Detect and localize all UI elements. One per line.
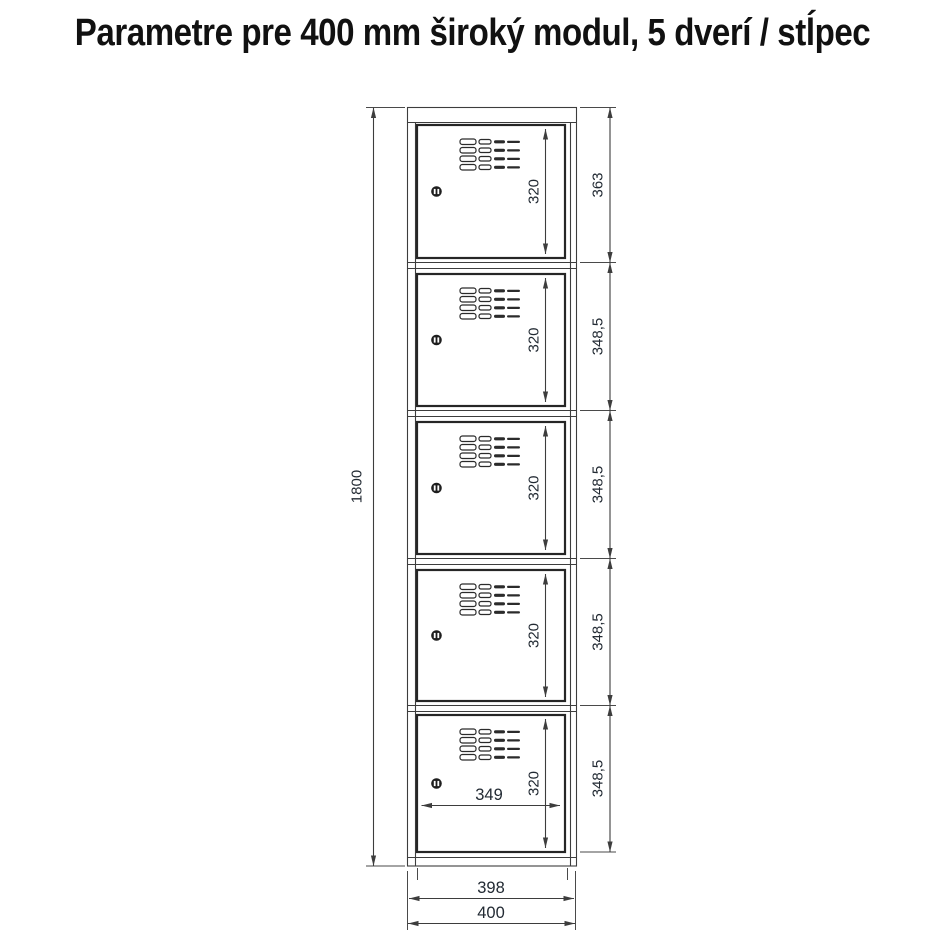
locker-door-2: 320 bbox=[417, 274, 565, 406]
door-width-label: 349 bbox=[475, 786, 503, 804]
width-dimensions: 398 400 bbox=[408, 868, 576, 930]
locker-door-4: 320 bbox=[417, 570, 565, 701]
lock-icon bbox=[431, 335, 442, 346]
door-height-label: 320 bbox=[526, 179, 543, 204]
overall-height-label: 1800 bbox=[349, 470, 366, 503]
overall-height-dimension: 1800 bbox=[349, 108, 406, 867]
bay-3-pitch-label: 348,5 bbox=[590, 466, 607, 504]
technical-drawing: 320 320 320 320 bbox=[0, 0, 945, 945]
lock-icon bbox=[431, 186, 442, 197]
door-height-label: 320 bbox=[526, 475, 543, 500]
bay-4-pitch-label: 348,5 bbox=[590, 613, 607, 651]
lock-icon bbox=[431, 778, 442, 789]
locker-door-1: 320 bbox=[417, 125, 565, 258]
body-width-label: 398 bbox=[477, 879, 505, 897]
overall-width-label: 400 bbox=[477, 904, 505, 922]
lock-icon bbox=[431, 630, 442, 641]
locker-door-3: 320 bbox=[417, 422, 565, 554]
bay-2-pitch-label: 348,5 bbox=[590, 318, 607, 356]
locker-dimension-diagram: Parametre pre 400 mm široký modul, 5 dve… bbox=[0, 0, 945, 945]
bay-5-pitch-label: 348,5 bbox=[590, 760, 607, 798]
door-height-label: 320 bbox=[526, 623, 543, 648]
locker-door-5: 320 349 bbox=[417, 715, 565, 852]
bay-pitch-dimensions: 363 348,5 348,5 348,5 348,5 bbox=[580, 108, 616, 853]
door-height-label: 320 bbox=[526, 771, 543, 796]
door-height-label: 320 bbox=[526, 327, 543, 352]
bay-1-pitch-label: 363 bbox=[590, 172, 607, 197]
lock-icon bbox=[431, 483, 442, 494]
